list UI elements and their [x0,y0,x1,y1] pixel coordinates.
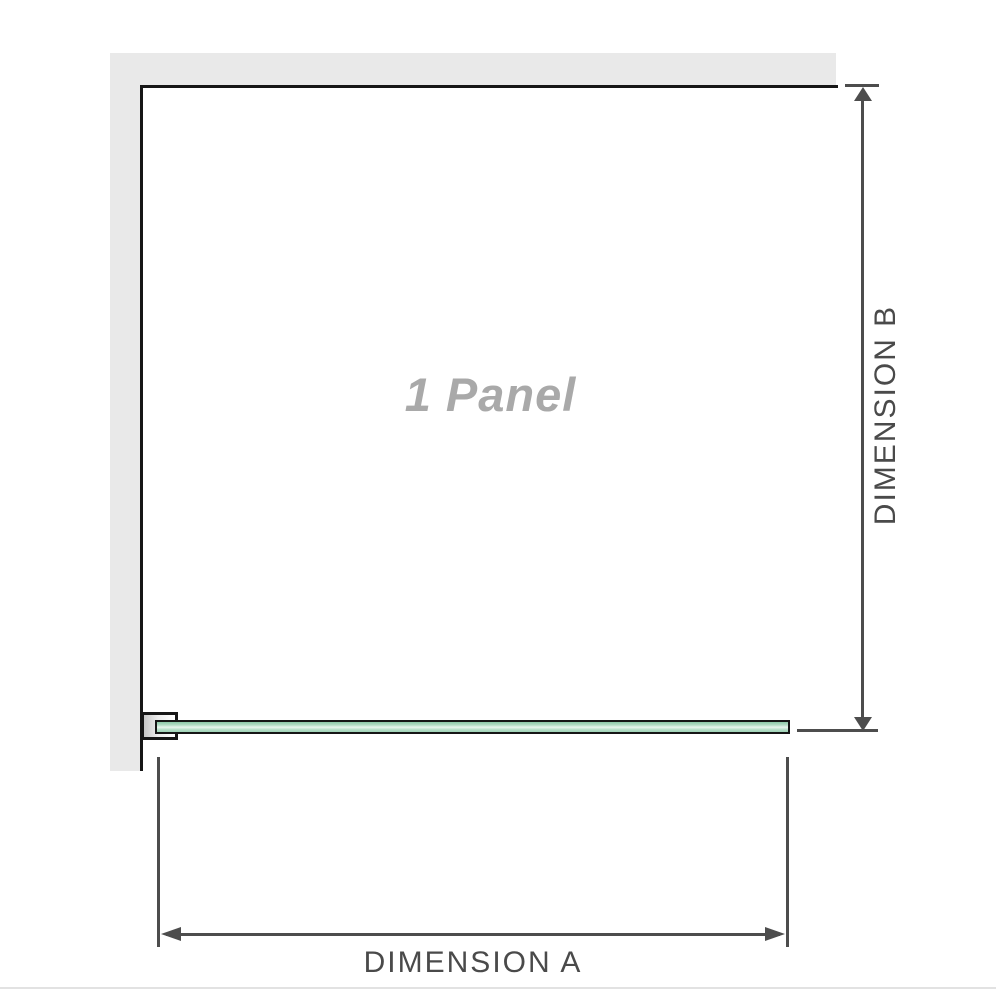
dimension-a-line [166,933,780,936]
arrow-down-icon [854,717,872,731]
frame-top-line [140,85,838,88]
frame-left-line [140,85,143,771]
arrow-up-icon [854,87,872,101]
dimension-b-line [861,92,864,726]
page-divider-line [0,987,996,989]
dimension-b-label: DIMENSION B [866,265,906,565]
glass-panel [155,720,790,734]
wall-left-bar [110,53,141,771]
dimension-a-right-extension-line [786,757,789,947]
arrow-right-icon [765,927,785,941]
shower-panel-dimension-diagram: 1 Panel DIMENSION B DIMENSION A [0,0,1000,1000]
dimension-a-label: DIMENSION A [160,946,786,980]
panel-count-label: 1 Panel [143,367,838,422]
wall-top-bar [110,53,836,85]
arrow-left-icon [161,927,181,941]
dimension-a-left-extension-line [157,757,160,947]
